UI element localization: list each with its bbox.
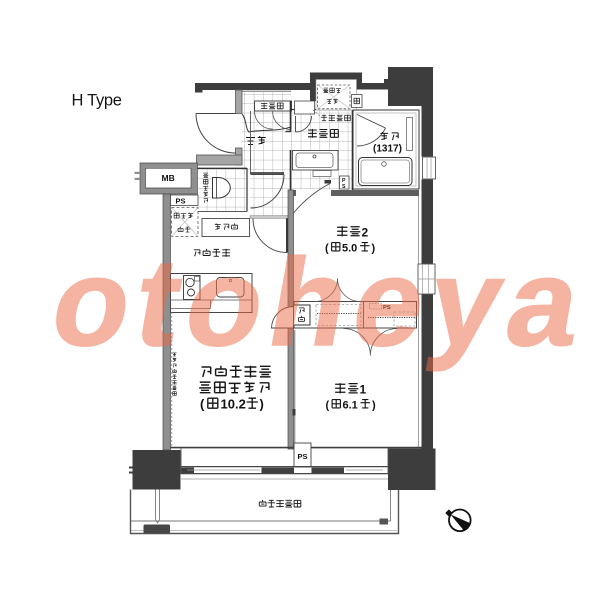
svg-text:(1317): (1317)	[373, 144, 402, 155]
svg-text:PS: PS	[176, 197, 186, 206]
svg-text:10.2: 10.2	[221, 397, 246, 412]
svg-text:S: S	[342, 184, 346, 190]
svg-text:PS: PS	[298, 452, 308, 461]
svg-text:): )	[260, 397, 264, 412]
svg-text:(: (	[326, 400, 330, 412]
svg-text:): )	[372, 400, 376, 412]
svg-text:6.1: 6.1	[343, 400, 358, 412]
svg-text:otoheya: otoheya	[42, 234, 598, 372]
svg-text:H Type: H Type	[72, 92, 122, 110]
svg-text:(: (	[200, 397, 205, 412]
svg-text:MB: MB	[162, 173, 175, 183]
svg-text:1: 1	[360, 383, 367, 397]
